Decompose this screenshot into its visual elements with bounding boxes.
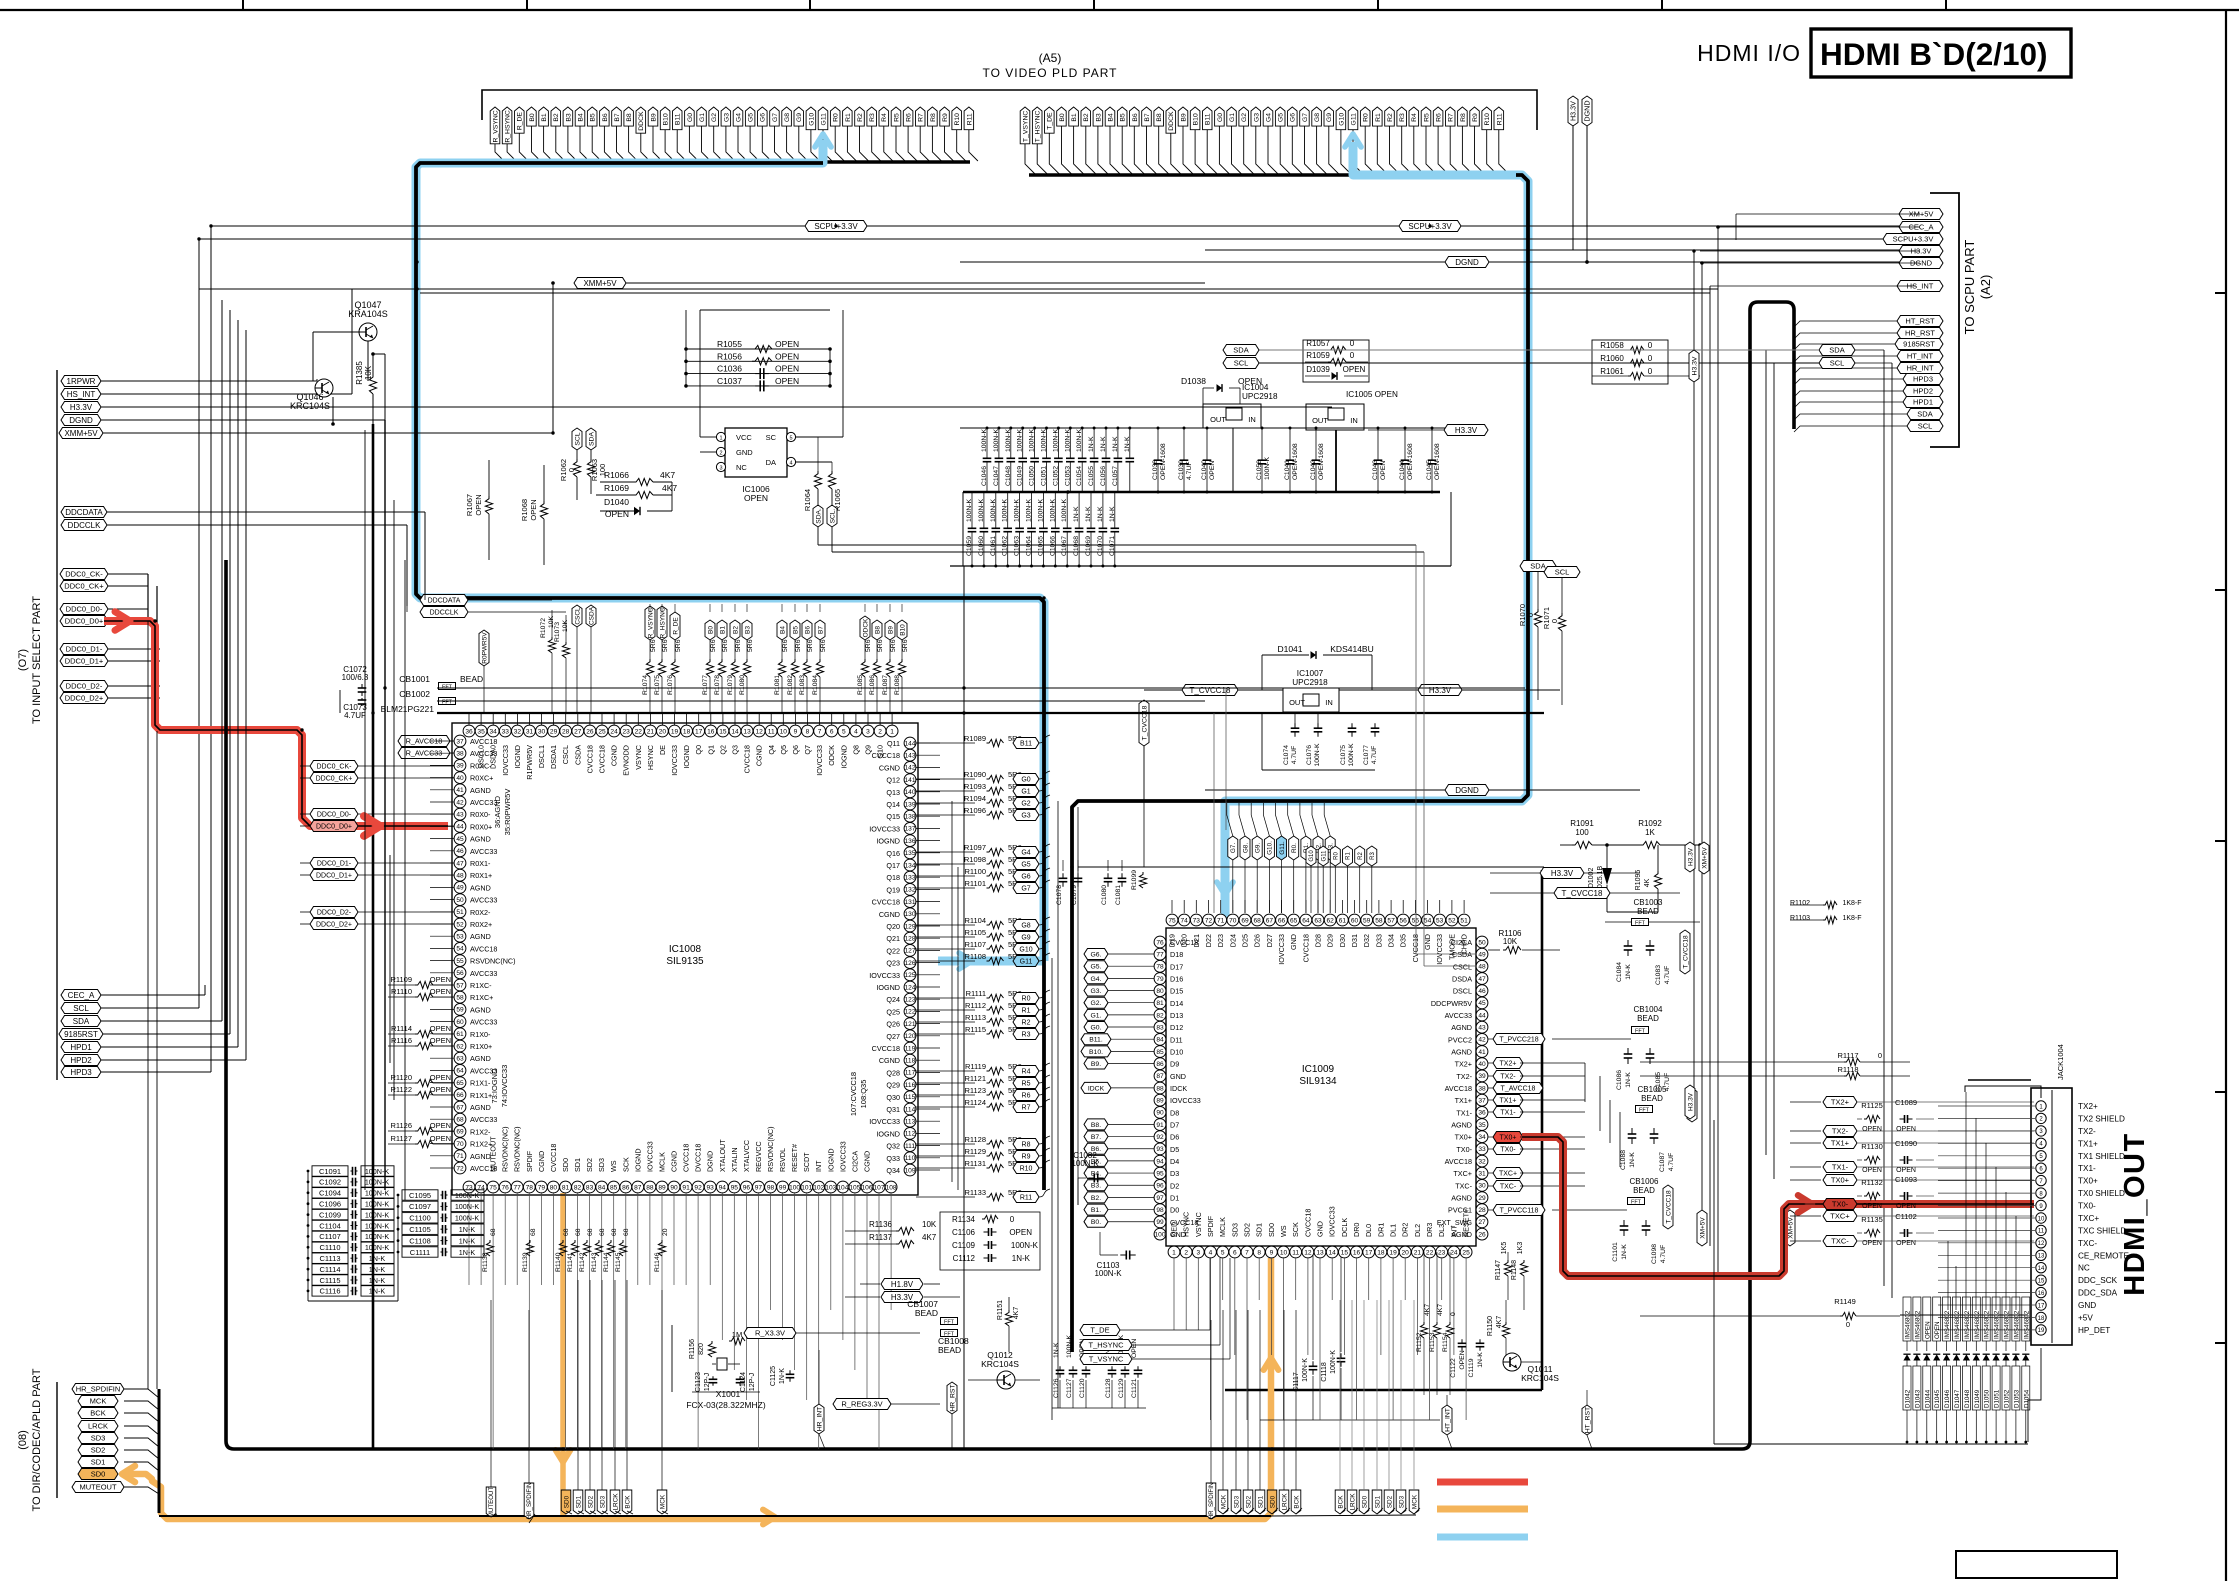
- svg-text:113: 113: [905, 1119, 916, 1126]
- svg-text:LRCK: LRCK: [612, 1493, 619, 1511]
- svg-text:SD3: SD3: [91, 1434, 106, 1443]
- svg-text:AGND: AGND: [470, 835, 491, 844]
- svg-text:95: 95: [731, 1184, 739, 1191]
- svg-text:DSDA: DSDA: [1452, 975, 1472, 984]
- svg-text:86: 86: [622, 1184, 630, 1191]
- svg-text:OPEN: OPEN: [605, 509, 629, 519]
- svg-text:43: 43: [456, 812, 464, 819]
- svg-text:C1114: C1114: [320, 1265, 341, 1274]
- svg-text:82: 82: [574, 1184, 582, 1191]
- svg-text:24: 24: [1450, 1249, 1458, 1256]
- svg-text:AGND: AGND: [1451, 1048, 1472, 1057]
- svg-text:CSDA: CSDA: [1452, 950, 1472, 959]
- svg-text:10K: 10K: [562, 619, 569, 632]
- svg-text:HPD2: HPD2: [1913, 387, 1933, 396]
- svg-text:100N-K: 100N-K: [365, 1232, 390, 1241]
- svg-text:45: 45: [1478, 1000, 1486, 1007]
- svg-text:B4: B4: [578, 113, 585, 122]
- svg-text:15: 15: [1341, 1249, 1349, 1256]
- svg-text:G4.: G4.: [1091, 976, 1102, 983]
- svg-text:100N-K: 100N-K: [966, 498, 973, 522]
- svg-text:B6: B6: [602, 113, 609, 122]
- svg-text:D3: D3: [1170, 1169, 1179, 1178]
- svg-text:C1077: C1077: [1363, 745, 1370, 765]
- svg-text:C1057: C1057: [1112, 466, 1119, 486]
- svg-text:R1126: R1126: [390, 1121, 412, 1130]
- svg-text:T_DE: T_DE: [1090, 1326, 1109, 1335]
- svg-text:R1105: R1105: [964, 928, 986, 937]
- svg-text:C1111: C1111: [410, 1248, 430, 1257]
- svg-text:BEAD: BEAD: [1633, 1186, 1655, 1195]
- svg-text:19: 19: [671, 728, 679, 735]
- svg-text:SD3: SD3: [599, 1495, 606, 1508]
- svg-text:0: 0: [1846, 1320, 1850, 1329]
- svg-text:TX1 SHIELD: TX1 SHIELD: [2078, 1152, 2125, 1161]
- svg-text:T_DE: T_DE: [1047, 112, 1054, 130]
- svg-text:C1089: C1089: [1895, 1098, 1917, 1107]
- svg-text:B2: B2: [553, 113, 560, 122]
- svg-text:B10.: B10.: [1089, 1049, 1103, 1056]
- svg-text:R1149: R1149: [1834, 1297, 1856, 1306]
- svg-text:17: 17: [1365, 1249, 1373, 1256]
- svg-text:R1151: R1151: [997, 1300, 1004, 1320]
- svg-text:Q5: Q5: [779, 745, 788, 755]
- svg-text:OUT: OUT: [1210, 415, 1226, 424]
- svg-text:OPEN: OPEN: [1862, 1240, 1882, 1247]
- svg-text:R0PWR5V: R0PWR5V: [481, 632, 488, 664]
- svg-text:OPEN: OPEN: [1896, 1203, 1916, 1210]
- svg-text:R_DE: R_DE: [517, 112, 524, 131]
- svg-text:39: 39: [456, 763, 464, 770]
- svg-text:HR_SPDIFIN: HR_SPDIFIN: [1208, 1483, 1215, 1520]
- svg-text:117: 117: [905, 1070, 916, 1077]
- svg-text:OPEN: OPEN: [1343, 365, 1366, 374]
- svg-text:MCK: MCK: [90, 1397, 107, 1406]
- svg-text:R5: R5: [1022, 1081, 1031, 1088]
- svg-text:R2: R2: [1387, 113, 1394, 122]
- svg-text:TX1+: TX1+: [1831, 1139, 1850, 1148]
- svg-text:R1055: R1055: [717, 339, 742, 349]
- svg-text:R1083: R1083: [799, 675, 806, 695]
- svg-text:C1121: C1121: [1131, 1378, 1138, 1398]
- svg-text:0: 0: [1648, 367, 1653, 376]
- svg-text:R1145,: R1145,: [615, 1250, 622, 1272]
- svg-text:Q12: Q12: [886, 776, 900, 785]
- svg-text:BEAD: BEAD: [1641, 1094, 1663, 1103]
- svg-text:OPEN: OPEN: [430, 1024, 451, 1033]
- svg-text:R1084: R1084: [812, 675, 819, 695]
- svg-text:SIL9135: SIL9135: [666, 956, 704, 967]
- svg-text:CGND: CGND: [879, 763, 900, 772]
- svg-text:DED: DED: [1170, 1222, 1179, 1237]
- svg-text:C1080: C1080: [1101, 885, 1108, 905]
- svg-text:C1046: C1046: [981, 466, 988, 486]
- svg-text:R1079: R1079: [727, 675, 734, 695]
- svg-text:D1042: D1042: [1905, 1389, 1912, 1408]
- svg-text:C1063: C1063: [1014, 536, 1021, 556]
- svg-text:C1078: C1078: [1056, 885, 1063, 905]
- svg-text:R1131: R1131: [964, 1159, 986, 1168]
- svg-text:R1X0+: R1X0+: [470, 1042, 492, 1051]
- svg-text:Q18: Q18: [886, 873, 900, 882]
- svg-text:138: 138: [904, 814, 915, 821]
- svg-text:66: 66: [456, 1092, 464, 1099]
- svg-text:R1101: R1101: [964, 879, 986, 888]
- svg-text:0: 0: [1878, 1051, 1882, 1060]
- svg-text:1: 1: [890, 728, 894, 735]
- svg-text:R1082: R1082: [787, 675, 794, 695]
- svg-text:B0: B0: [529, 113, 536, 122]
- svg-text:8: 8: [1257, 1249, 1261, 1256]
- svg-text:R1137: R1137: [869, 1233, 893, 1242]
- svg-text:IOVCC33: IOVCC33: [838, 1141, 847, 1172]
- svg-text:IOVCC33: IOVCC33: [1170, 1096, 1201, 1105]
- svg-text:DSDA1: DSDA1: [549, 745, 558, 769]
- svg-text:14: 14: [1329, 1249, 1337, 1256]
- svg-text:IMS46802: IMS46802: [1905, 1310, 1912, 1339]
- svg-text:OPEN: OPEN: [529, 499, 538, 520]
- svg-text:G10: G10: [1338, 113, 1345, 126]
- svg-text:R1086: R1086: [869, 675, 876, 695]
- svg-text:R0: R0: [1334, 852, 1340, 860]
- svg-text:5R6: 5R6: [710, 639, 717, 652]
- svg-text:TX1+: TX1+: [1500, 1098, 1517, 1105]
- svg-text:37: 37: [1478, 1098, 1486, 1105]
- svg-text:OPEN: OPEN: [430, 1121, 451, 1130]
- svg-text:T_PVCC118: T_PVCC118: [1500, 1208, 1539, 1215]
- svg-text:D14: D14: [1170, 999, 1183, 1008]
- svg-text:D10: D10: [1170, 1048, 1183, 1057]
- svg-text:(O7): (O7): [17, 649, 29, 671]
- svg-text:D22: D22: [1204, 934, 1213, 947]
- svg-text:R6: R6: [906, 113, 913, 122]
- svg-text:AVCC33: AVCC33: [470, 798, 497, 807]
- svg-text:C1106: C1106: [952, 1228, 976, 1237]
- svg-text:1N-K: 1N-K: [1625, 964, 1632, 980]
- svg-text:R2: R2: [1358, 852, 1364, 860]
- svg-text:SDA: SDA: [1233, 346, 1248, 355]
- svg-text:73: 73: [1193, 917, 1201, 924]
- svg-text:CSDA: CSDA: [588, 606, 595, 625]
- svg-text:R1096: R1096: [964, 806, 986, 815]
- svg-text:54: 54: [1424, 917, 1432, 924]
- svg-text:C1051: C1051: [1041, 466, 1048, 486]
- svg-text:111: 111: [905, 1143, 915, 1150]
- svg-text:G1.: G1.: [1091, 1012, 1102, 1019]
- svg-text:SD2: SD2: [587, 1495, 594, 1508]
- svg-text:C1107: C1107: [319, 1232, 341, 1241]
- svg-text:Q26: Q26: [886, 1020, 900, 1029]
- svg-text:89: 89: [658, 1184, 666, 1191]
- svg-text:DSCL: DSCL: [1453, 987, 1472, 996]
- svg-text:DGND: DGND: [69, 416, 93, 425]
- svg-text:D35: D35: [1399, 934, 1408, 947]
- svg-text:MCK: MCK: [1220, 1494, 1227, 1509]
- svg-text:4K7: 4K7: [922, 1233, 937, 1242]
- svg-text:HR_RST: HR_RST: [949, 1384, 956, 1411]
- svg-text:R6: R6: [1022, 1093, 1031, 1100]
- svg-text:5R6: 5R6: [877, 639, 884, 652]
- svg-text:C1122: C1122: [1450, 1358, 1457, 1378]
- svg-text:OUT: OUT: [1312, 416, 1328, 425]
- svg-text:4K7: 4K7: [660, 470, 675, 480]
- svg-text:57: 57: [1387, 917, 1395, 924]
- svg-text:88: 88: [1156, 1085, 1164, 1092]
- svg-text:R1385: R1385: [355, 361, 364, 385]
- svg-text:C1052: C1052: [1052, 466, 1059, 486]
- svg-text:HSYNC: HSYNC: [1182, 1212, 1191, 1237]
- svg-text:100N-K: 100N-K: [1071, 1159, 1099, 1168]
- svg-text:R1094: R1094: [964, 794, 986, 803]
- svg-text:61: 61: [456, 1031, 464, 1038]
- svg-text:R_X3.3V: R_X3.3V: [755, 1329, 785, 1338]
- svg-text:38: 38: [456, 751, 464, 758]
- svg-text:R1134: R1134: [952, 1215, 976, 1224]
- svg-text:89: 89: [1156, 1098, 1164, 1105]
- svg-text:0: 0: [1010, 1215, 1015, 1224]
- svg-text:Q34: Q34: [886, 1166, 900, 1175]
- svg-text:1N-K: 1N-K: [1621, 1244, 1628, 1260]
- svg-text:SD1: SD1: [1374, 1495, 1381, 1508]
- svg-text:G0.: G0.: [1091, 1025, 1102, 1032]
- svg-text:123: 123: [904, 997, 915, 1004]
- svg-text:OPEN: OPEN: [430, 1134, 451, 1143]
- svg-text:CGND: CGND: [863, 1151, 872, 1172]
- svg-text:SDA: SDA: [1917, 410, 1932, 419]
- svg-text:TX2+: TX2+: [1455, 1060, 1472, 1069]
- svg-text:15: 15: [2038, 1279, 2045, 1285]
- svg-text:38: 38: [1478, 1085, 1486, 1092]
- svg-text:26: 26: [1478, 1231, 1486, 1238]
- svg-text:KRC104S: KRC104S: [290, 401, 330, 411]
- svg-text:MCK: MCK: [659, 1494, 666, 1509]
- svg-text:R1120: R1120: [390, 1073, 412, 1082]
- svg-text:4.7UF: 4.7UF: [1371, 746, 1378, 765]
- svg-text:TXC-: TXC-: [1500, 1184, 1517, 1191]
- svg-text:OPEN: OPEN: [430, 1073, 451, 1082]
- svg-text:C1088: C1088: [1620, 1150, 1627, 1170]
- svg-text:3: 3: [1196, 1249, 1200, 1256]
- svg-text:C1071: C1071: [1109, 536, 1116, 556]
- svg-text:C1064: C1064: [1026, 536, 1033, 556]
- svg-text:TX0+: TX0+: [2078, 1177, 2098, 1186]
- svg-text:TX1+: TX1+: [1455, 1096, 1472, 1105]
- svg-text:H1.8V: H1.8V: [891, 1280, 914, 1289]
- svg-text:KRA104S: KRA104S: [348, 309, 388, 319]
- svg-text:IN: IN: [1248, 415, 1256, 424]
- svg-text:100N-K: 100N-K: [1011, 1241, 1039, 1250]
- svg-text:B4.: B4.: [1091, 1171, 1101, 1178]
- svg-text:2: 2: [719, 450, 722, 456]
- svg-text:100N-K: 100N-K: [365, 1243, 390, 1252]
- svg-text:R10: R10: [1484, 113, 1491, 126]
- svg-text:OPEN: OPEN: [1459, 1350, 1466, 1369]
- svg-text:23: 23: [1438, 1249, 1446, 1256]
- svg-text:4K7: 4K7: [1013, 1307, 1020, 1320]
- svg-text:SD3: SD3: [1233, 1495, 1240, 1508]
- svg-text:R1069: R1069: [604, 483, 629, 493]
- svg-text:81: 81: [562, 1184, 570, 1191]
- svg-text:R1080: R1080: [739, 675, 746, 695]
- svg-text:D34: D34: [1387, 934, 1396, 947]
- svg-text:RSVDNC(NC): RSVDNC(NC): [470, 957, 516, 966]
- svg-text:AVCC33: AVCC33: [470, 1115, 497, 1124]
- svg-text:H3.3V: H3.3V: [1687, 847, 1694, 866]
- svg-text:20: 20: [659, 728, 667, 735]
- svg-text:19: 19: [2038, 1328, 2045, 1334]
- svg-text:CVCC18: CVCC18: [1301, 934, 1310, 962]
- svg-text:SCDT: SCDT: [802, 1152, 811, 1172]
- svg-text:FFT: FFT: [442, 684, 453, 690]
- svg-text:AVCC33: AVCC33: [470, 969, 497, 978]
- svg-text:TO SCPU PART: TO SCPU PART: [1962, 240, 1977, 335]
- svg-text:R1068: R1068: [520, 499, 529, 521]
- svg-text:9: 9: [1270, 1249, 1274, 1256]
- svg-text:IN: IN: [1350, 416, 1358, 425]
- svg-text:1K3: 1K3: [1517, 1242, 1524, 1255]
- svg-text:T_CVCC18: T_CVCC18: [1190, 686, 1231, 695]
- svg-text:IOGND: IOGND: [682, 745, 691, 769]
- svg-text:IOVCC33: IOVCC33: [501, 745, 510, 776]
- svg-text:R0X2-: R0X2-: [470, 908, 491, 917]
- svg-text:DDC0_D0-: DDC0_D0-: [317, 812, 352, 819]
- svg-text:WS: WS: [609, 1160, 618, 1172]
- svg-text:IOVCC33: IOVCC33: [815, 745, 824, 776]
- svg-text:R1130: R1130: [1861, 1142, 1883, 1151]
- svg-text:R0X0-: R0X0-: [470, 810, 491, 819]
- svg-text:TXC+: TXC+: [2078, 1214, 2099, 1223]
- svg-text:R4: R4: [1411, 113, 1418, 122]
- svg-text:GND: GND: [736, 448, 753, 457]
- svg-text:1: 1: [719, 435, 722, 441]
- svg-text:10: 10: [2038, 1216, 2045, 1222]
- svg-text:G7: G7: [772, 113, 779, 122]
- svg-text:4: 4: [1209, 1249, 1213, 1256]
- svg-text:76: 76: [502, 1184, 510, 1191]
- svg-text:Q33: Q33: [886, 1154, 900, 1163]
- svg-text:HDMI_OUT: HDMI_OUT: [2119, 1132, 2151, 1295]
- svg-text:Q22: Q22: [886, 946, 900, 955]
- svg-text:56: 56: [1400, 917, 1408, 924]
- svg-text:IOGND: IOGND: [513, 745, 522, 769]
- svg-text:Q20: Q20: [886, 922, 900, 931]
- svg-text:126: 126: [904, 960, 915, 967]
- svg-text:DDC0_CK+: DDC0_CK+: [316, 776, 353, 783]
- svg-text:JACK1004: JACK1004: [2056, 1044, 2065, 1080]
- svg-text:XTALIN: XTALIN: [730, 1147, 739, 1172]
- svg-text:R1152: R1152: [1416, 1332, 1423, 1352]
- svg-text:SD1: SD1: [1255, 1223, 1264, 1237]
- svg-text:C1037: C1037: [717, 376, 742, 386]
- svg-text:5R6: 5R6: [902, 639, 909, 652]
- svg-text:G11: G11: [1321, 850, 1327, 862]
- svg-text:G4: G4: [735, 113, 742, 122]
- svg-text:B1.: B1.: [1091, 1207, 1101, 1214]
- svg-text:Q27: Q27: [886, 1032, 900, 1041]
- svg-text:100N-K: 100N-K: [365, 1167, 390, 1176]
- svg-text:D1048: D1048: [1964, 1389, 1971, 1408]
- svg-text:TXC+: TXC+: [1453, 1169, 1472, 1178]
- svg-text:12P-J: 12P-J: [749, 1373, 756, 1391]
- svg-text:OPEN: OPEN: [430, 975, 451, 984]
- svg-text:T_CVCC18: T_CVCC18: [1682, 935, 1689, 969]
- svg-text:D1052: D1052: [2004, 1389, 2011, 1408]
- svg-text:B4: B4: [1108, 113, 1115, 122]
- svg-text:SCL: SCL: [1918, 422, 1933, 431]
- svg-text:OPEN: OPEN: [775, 376, 799, 386]
- svg-text:B11: B11: [675, 113, 682, 125]
- svg-text:R1XC-: R1XC-: [470, 981, 492, 990]
- svg-text:10K: 10K: [922, 1220, 937, 1229]
- svg-text:100N-K: 100N-K: [1061, 498, 1068, 522]
- svg-text:86: 86: [1156, 1061, 1164, 1068]
- svg-text:C1074: C1074: [1283, 745, 1290, 765]
- svg-text:NC: NC: [736, 463, 747, 472]
- svg-text:IOGND: IOGND: [876, 983, 900, 992]
- svg-text:5R6: 5R6: [662, 639, 669, 652]
- svg-text:64: 64: [456, 1068, 464, 1075]
- svg-text:20: 20: [1402, 1249, 1410, 1256]
- svg-text:5: 5: [842, 728, 846, 735]
- svg-text:66: 66: [1278, 917, 1286, 924]
- svg-text:DDCK: DDCK: [1168, 111, 1175, 131]
- svg-text:0: 0: [1450, 1312, 1457, 1316]
- svg-text:SDA: SDA: [73, 1017, 90, 1026]
- svg-text:24: 24: [610, 728, 618, 735]
- svg-text:B4: B4: [779, 626, 786, 634]
- svg-text:IMS46802: IMS46802: [1944, 1310, 1951, 1339]
- svg-text:AGND: AGND: [470, 932, 491, 941]
- svg-text:SD0: SD0: [561, 1158, 570, 1172]
- svg-text:D1: D1: [1170, 1194, 1179, 1203]
- svg-text:9: 9: [794, 728, 798, 735]
- svg-text:C1094: C1094: [319, 1189, 341, 1198]
- svg-text:53: 53: [1436, 917, 1444, 924]
- svg-text:D27: D27: [1265, 934, 1274, 947]
- svg-text:D9: D9: [1170, 1060, 1179, 1069]
- svg-text:R1X1-: R1X1-: [470, 1079, 491, 1088]
- svg-text:C1045: C1045: [1426, 460, 1433, 480]
- svg-text:C1036: C1036: [717, 364, 742, 374]
- svg-text:1N-K: 1N-K: [1124, 436, 1131, 452]
- svg-text:B11.: B11.: [1089, 1037, 1103, 1044]
- svg-text:D6: D6: [1170, 1133, 1179, 1142]
- svg-text:112: 112: [905, 1131, 916, 1138]
- svg-text:D31: D31: [1350, 934, 1359, 947]
- svg-text:C1123: C1123: [695, 1372, 702, 1392]
- svg-text:OPEN-1608: OPEN-1608: [1160, 443, 1167, 480]
- svg-text:92: 92: [694, 1184, 702, 1191]
- svg-text:INT: INT: [1449, 1225, 1458, 1237]
- svg-text:R9: R9: [1472, 113, 1479, 122]
- svg-text:33: 33: [502, 728, 510, 735]
- svg-text:TO INPUT SELECT PART: TO INPUT SELECT PART: [31, 596, 43, 724]
- svg-text:40: 40: [456, 775, 464, 782]
- svg-text:R1090: R1090: [964, 770, 986, 779]
- svg-text:D1045: D1045: [1934, 1389, 1941, 1408]
- svg-text:HR_SPDIFIN: HR_SPDIFIN: [526, 1483, 533, 1520]
- svg-text:68: 68: [530, 1228, 537, 1236]
- svg-text:107:CVCC18: 107:CVCC18: [849, 1072, 858, 1116]
- svg-text:KRC104S: KRC104S: [1521, 1373, 1559, 1383]
- svg-text:GND: GND: [1170, 1072, 1186, 1081]
- svg-text:GND: GND: [1423, 934, 1432, 950]
- svg-text:48: 48: [1478, 964, 1486, 971]
- svg-text:SCL: SCL: [1830, 359, 1845, 368]
- svg-text:100: 100: [789, 1184, 800, 1191]
- svg-text:X1001: X1001: [716, 1389, 741, 1399]
- svg-text:XTALVCC: XTALVCC: [742, 1140, 751, 1172]
